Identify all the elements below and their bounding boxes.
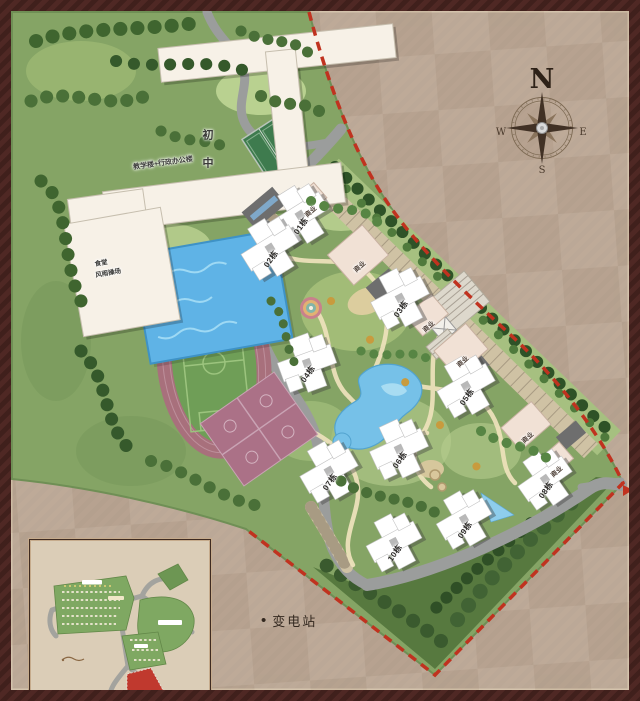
boundary-arrow xyxy=(623,485,629,496)
compass-west-label: W xyxy=(496,127,507,138)
plan-canvas: N W E S 教学楼+行政办公楼 初中 食堂 风雨操场 01栋 02栋 03栋… xyxy=(11,11,629,690)
site-plan-poster: N W E S 教学楼+行政办公楼 初中 食堂 风雨操场 01栋 02栋 03栋… xyxy=(0,0,640,701)
inset-sketch-mark xyxy=(62,657,84,660)
compass-north-label: N xyxy=(530,64,555,95)
compass-south-label: S xyxy=(539,165,546,176)
compass-rose: N W E S xyxy=(496,64,587,176)
canteen-gym-building xyxy=(64,207,180,336)
inset-location-map xyxy=(29,539,211,690)
compass-east-label: E xyxy=(579,127,586,138)
inset-map-drawing xyxy=(30,540,210,690)
